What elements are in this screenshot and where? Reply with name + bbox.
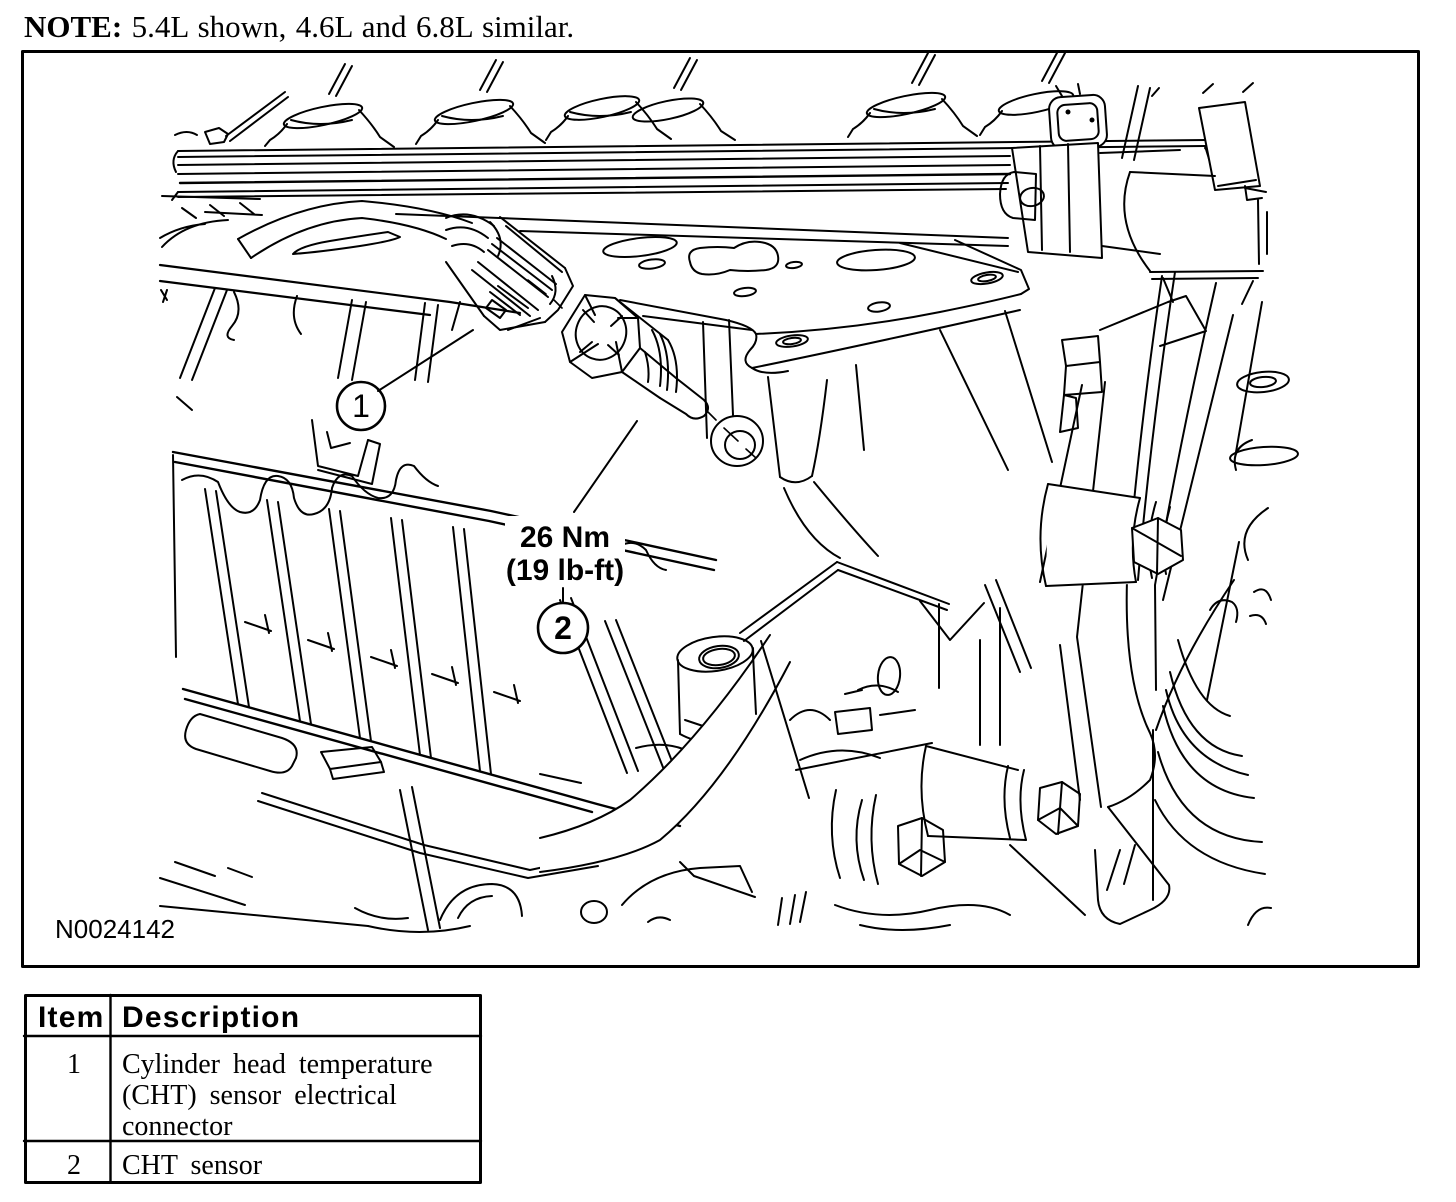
svg-text:CHT sensor: CHT sensor: [122, 1150, 263, 1181]
svg-text:(19 lb-ft): (19 lb-ft): [506, 554, 624, 587]
svg-text:2: 2: [554, 610, 572, 646]
svg-text:2: 2: [67, 1150, 81, 1181]
svg-text:Cylinder head temperature: Cylinder head temperature: [122, 1049, 433, 1080]
svg-text:connector: connector: [122, 1111, 233, 1142]
svg-text:1: 1: [352, 388, 370, 424]
svg-text:Item: Item: [38, 1001, 105, 1034]
svg-text:1: 1: [67, 1049, 81, 1080]
svg-text:NOTE: 5.4L shown, 4.6L and 6.8: NOTE: 5.4L shown, 4.6L and 6.8L similar.: [24, 9, 574, 44]
svg-text:(CHT) sensor electrical: (CHT) sensor electrical: [122, 1080, 397, 1111]
svg-text:26 Nm: 26 Nm: [520, 521, 610, 554]
svg-text:N0024142: N0024142: [55, 914, 175, 944]
svg-text:Description: Description: [122, 1001, 300, 1034]
